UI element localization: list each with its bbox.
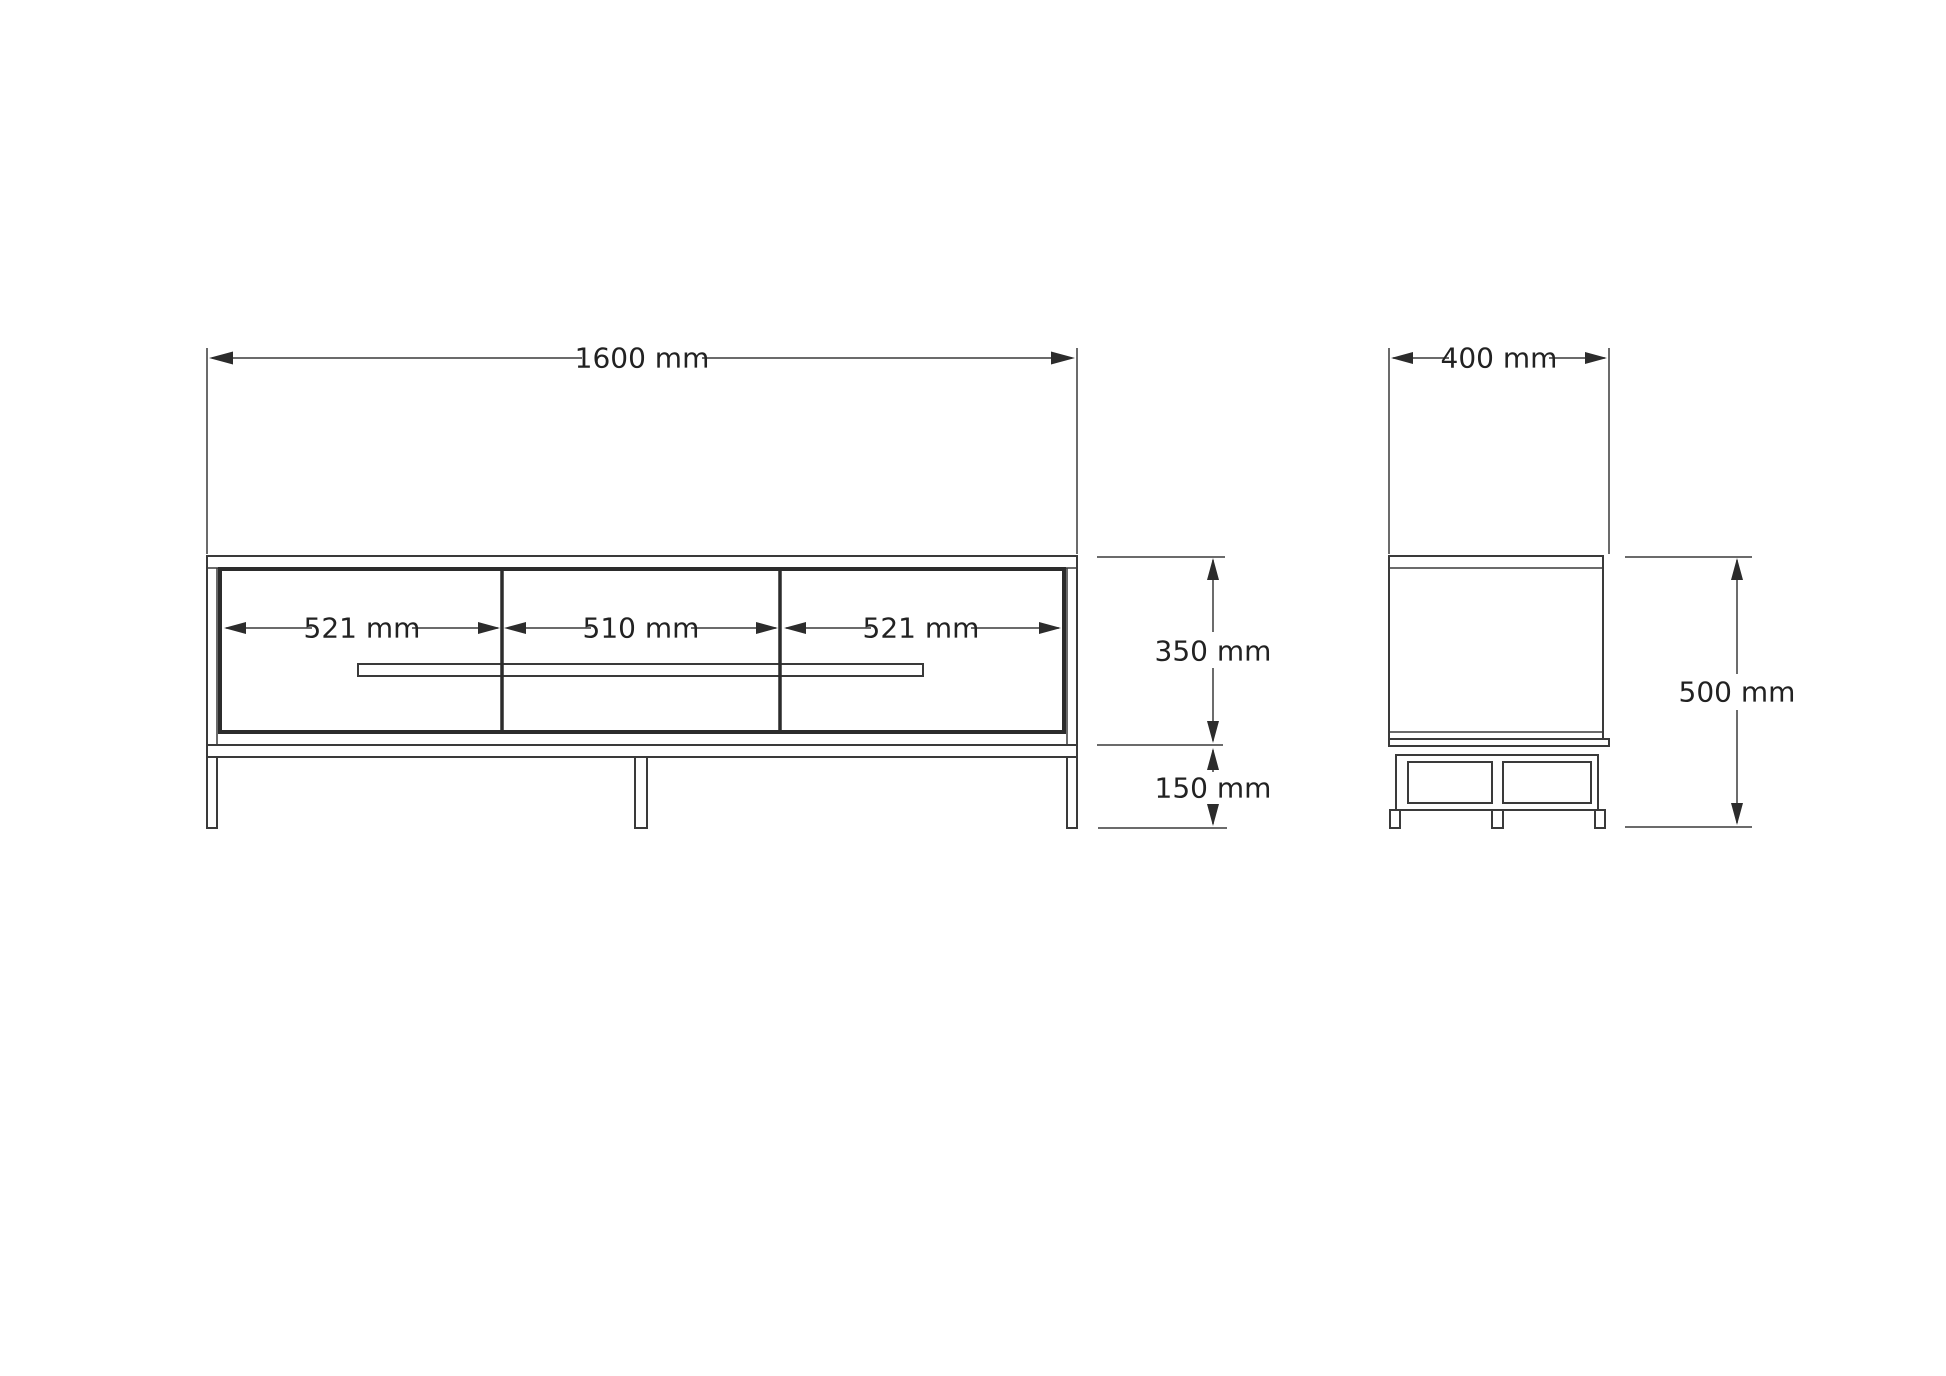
leg-center	[635, 757, 647, 828]
side-view: 400 mm 500 mm	[1389, 342, 1795, 829]
dim-label-overall-width: 1600 mm	[575, 342, 710, 375]
dim-label-section-2: 510 mm	[583, 612, 700, 645]
base-rail	[207, 745, 1077, 757]
arrow-up-icon	[1731, 558, 1743, 580]
leg-left	[207, 757, 217, 828]
dim-base-height: 150 mm	[1098, 748, 1271, 828]
arrow-right-icon	[1051, 352, 1075, 365]
dim-label-section-1: 521 mm	[304, 612, 421, 645]
leg-back	[1595, 810, 1605, 828]
cabinet-side	[1389, 556, 1609, 828]
leg-front	[1390, 810, 1400, 828]
technical-drawing: 1600 mm 521 m	[0, 0, 1946, 1376]
dim-label-depth: 400 mm	[1441, 342, 1558, 375]
arrow-up-icon	[1207, 558, 1219, 580]
side-carcass-outline	[1389, 556, 1603, 746]
handle-bar	[358, 664, 923, 676]
arrow-right-icon	[1585, 352, 1607, 364]
arrow-left-icon	[1391, 352, 1413, 364]
dim-front-sections: 521 mm 510 mm 521 mm	[224, 612, 1061, 645]
door-panels-frame	[220, 569, 1064, 732]
arrow-down-icon	[1731, 803, 1743, 825]
base-frame-opening-right	[1503, 762, 1591, 803]
arrow-down-icon	[1207, 721, 1219, 743]
front-view: 1600 mm 521 m	[207, 342, 1271, 829]
dim-label-section-3: 521 mm	[863, 612, 980, 645]
arrow-up-icon	[1207, 748, 1219, 770]
dim-front-overall-width: 1600 mm	[207, 342, 1077, 555]
leg-middle	[1492, 810, 1503, 828]
base-frame-opening-left	[1408, 762, 1492, 803]
cabinet-front	[207, 556, 1077, 828]
bottom-board-lip	[1389, 739, 1609, 746]
dim-side-depth: 400 mm	[1389, 342, 1609, 555]
dim-label-overall-height: 500 mm	[1679, 676, 1796, 709]
dim-carcass-height: 350 mm	[1097, 557, 1271, 745]
dim-label-base-height: 150 mm	[1155, 772, 1272, 805]
arrow-left-icon	[209, 352, 233, 365]
arrow-down-icon	[1207, 804, 1219, 826]
dim-overall-height: 500 mm	[1625, 557, 1795, 827]
dim-label-carcass-height: 350 mm	[1155, 635, 1272, 668]
leg-right	[1067, 757, 1077, 828]
